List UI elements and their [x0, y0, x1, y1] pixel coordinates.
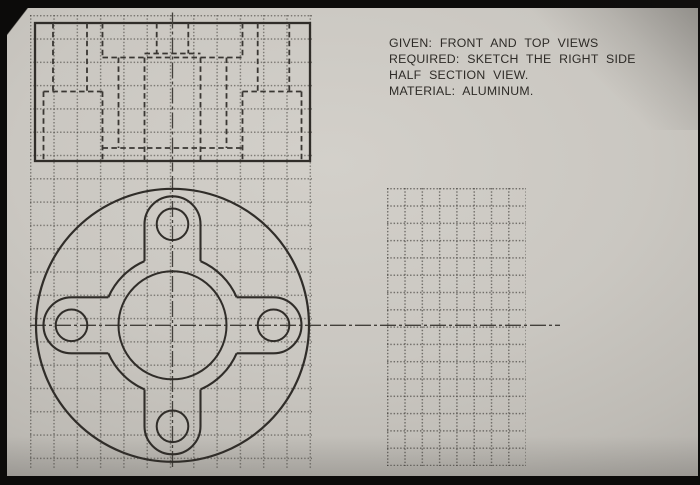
photo-corner-wedge [0, 0, 34, 44]
front-view [35, 13, 310, 172]
center-boss-arc [108, 261, 144, 297]
center-boss-arc [108, 353, 144, 389]
top-view [30, 176, 560, 470]
photo-corner-shadow [480, 0, 700, 130]
center-boss-arc [201, 353, 237, 389]
center-boss-arc [201, 261, 237, 297]
drafting-worksheet: { "notes": { "lines": [ "GIVEN: FRONT AN… [0, 0, 700, 485]
